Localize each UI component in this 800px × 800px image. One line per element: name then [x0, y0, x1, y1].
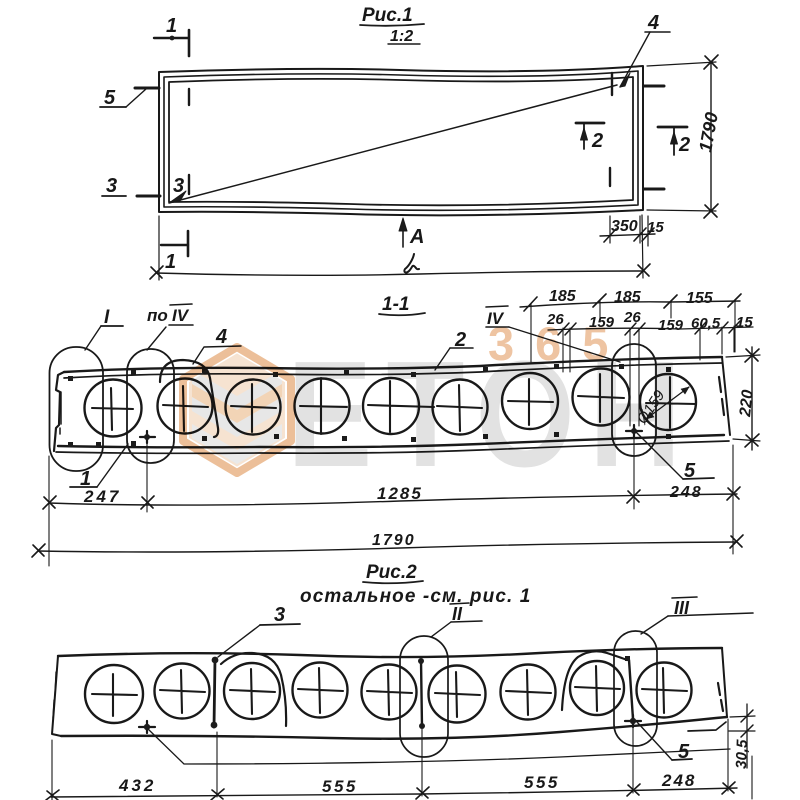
- svg-text:4: 4: [647, 12, 659, 34]
- svg-text:3: 3: [106, 175, 117, 197]
- svg-text:365: 365: [488, 317, 629, 370]
- svg-text:155: 155: [686, 290, 714, 307]
- svg-text:1790: 1790: [372, 532, 416, 549]
- svg-text:1: 1: [165, 251, 176, 273]
- svg-text:1: 1: [166, 15, 177, 37]
- svg-text:4: 4: [215, 326, 227, 348]
- svg-text:остальное -см. рис. 1: остальное -см. рис. 1: [300, 586, 531, 607]
- svg-text:Рис.1: Рис.1: [362, 5, 413, 26]
- svg-text:I: I: [104, 307, 110, 328]
- svg-text:по: по: [147, 306, 168, 325]
- svg-text:15: 15: [647, 219, 664, 236]
- svg-text:1-1: 1-1: [382, 294, 409, 315]
- svg-text:15: 15: [736, 314, 753, 331]
- svg-text:5: 5: [104, 87, 116, 109]
- svg-text:220: 220: [737, 389, 757, 418]
- svg-text:2: 2: [591, 130, 603, 152]
- svg-text:Рис.2: Рис.2: [366, 562, 417, 583]
- svg-text:60,5: 60,5: [691, 315, 721, 332]
- svg-text:3: 3: [173, 175, 184, 197]
- svg-text:248: 248: [661, 771, 696, 790]
- svg-text:350: 350: [611, 218, 638, 235]
- svg-text:3: 3: [274, 604, 285, 626]
- svg-text:247: 247: [83, 487, 121, 506]
- svg-text:1:2: 1:2: [390, 28, 413, 45]
- svg-text:555: 555: [524, 773, 560, 792]
- svg-text:555: 555: [322, 777, 358, 796]
- svg-text:185: 185: [614, 289, 642, 306]
- svg-text:2: 2: [678, 134, 690, 156]
- svg-text:185: 185: [549, 288, 577, 305]
- svg-text:1790: 1790: [695, 111, 722, 154]
- svg-text:432: 432: [118, 776, 156, 795]
- svg-text:30,5: 30,5: [733, 739, 751, 769]
- svg-text:IV: IV: [172, 306, 190, 325]
- svg-text:A: A: [409, 226, 424, 248]
